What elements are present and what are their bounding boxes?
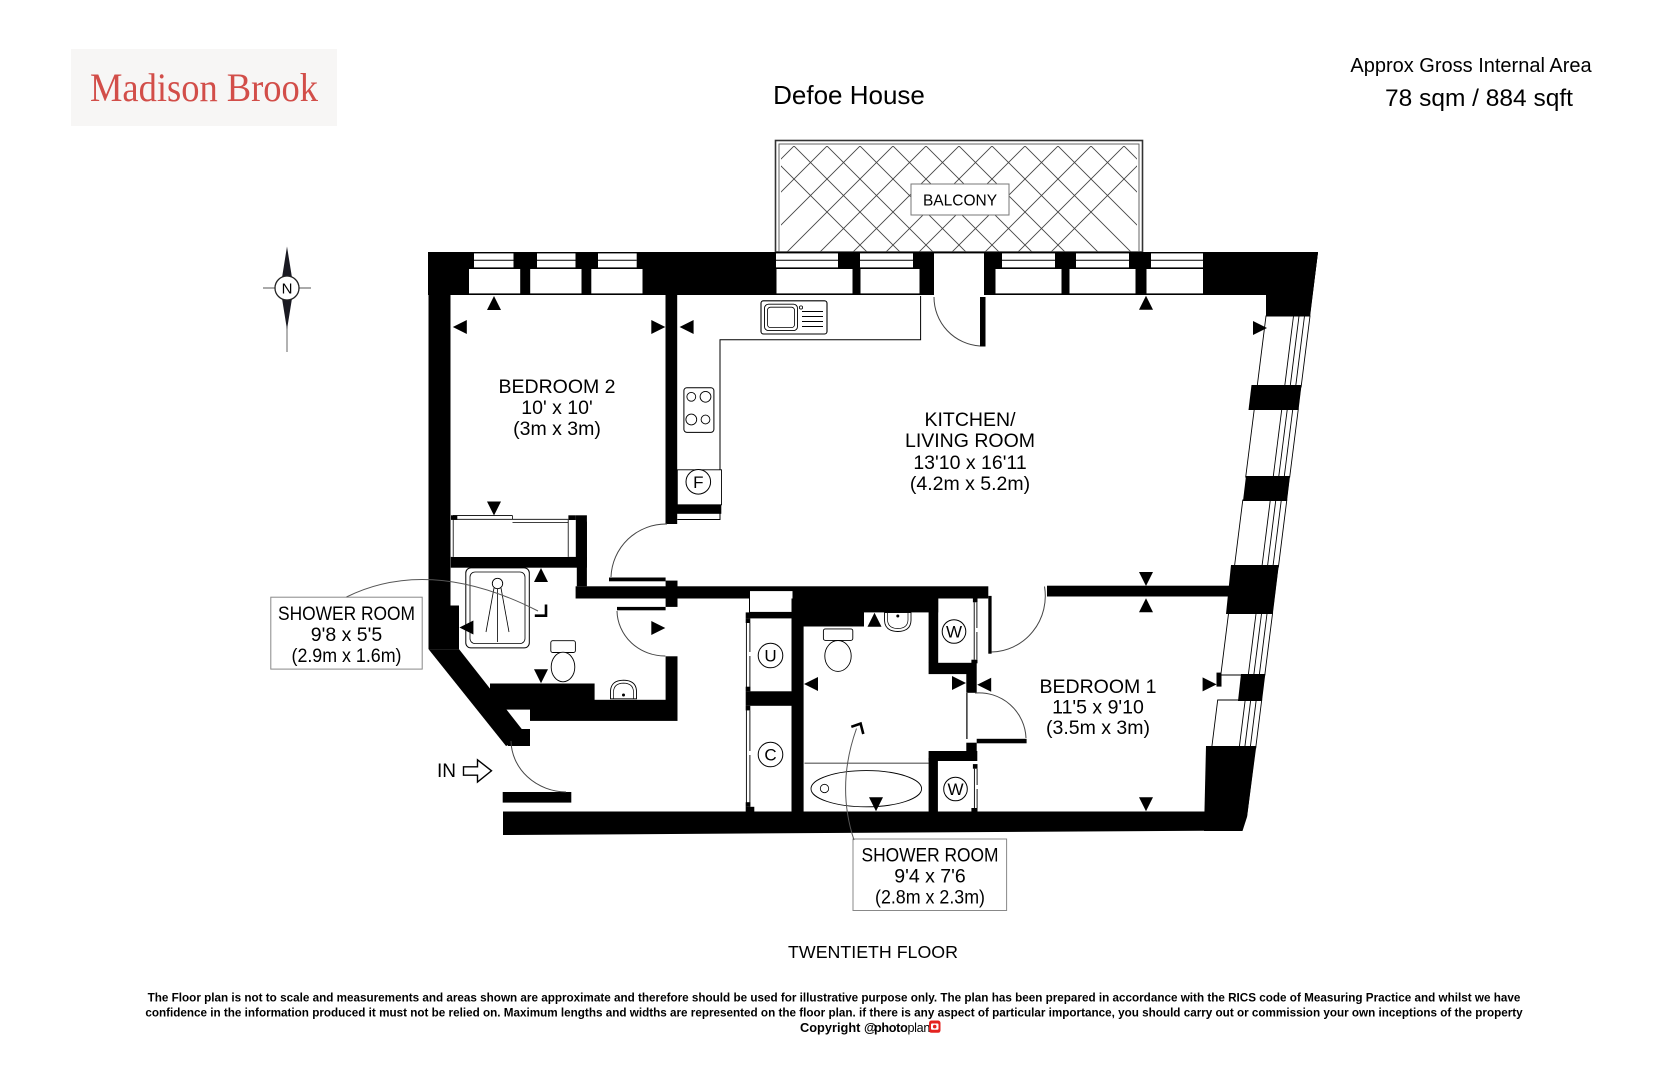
svg-text:U: U — [764, 647, 776, 666]
svg-text:Copyright @: Copyright @ — [800, 1020, 876, 1035]
svg-text:13'10 x 16'11: 13'10 x 16'11 — [913, 452, 1026, 474]
svg-text:LIVING ROOM: LIVING ROOM — [905, 430, 1035, 452]
svg-text:BALCONY: BALCONY — [923, 193, 997, 210]
svg-text:9'4 x 7'6: 9'4 x 7'6 — [894, 866, 965, 888]
svg-text:(3.5m x 3m): (3.5m x 3m) — [1046, 717, 1150, 739]
svg-text:F: F — [693, 473, 703, 492]
svg-text:(3m x 3m): (3m x 3m) — [513, 418, 601, 440]
svg-text:SHOWER ROOM: SHOWER ROOM — [862, 845, 999, 867]
svg-text:(2.8m x 2.3m): (2.8m x 2.3m) — [875, 887, 985, 909]
svg-text:Madison Brook: Madison Brook — [90, 65, 318, 110]
svg-text:C: C — [764, 746, 776, 765]
svg-text:BEDROOM 1: BEDROOM 1 — [1039, 676, 1156, 698]
svg-text:78 sqm / 884 sqft: 78 sqm / 884 sqft — [1385, 85, 1573, 112]
svg-text:11'5 x 9'10: 11'5 x 9'10 — [1052, 697, 1144, 719]
svg-text:(4.2m x 5.2m): (4.2m x 5.2m) — [910, 473, 1030, 495]
svg-text:N: N — [282, 281, 293, 298]
svg-text:BEDROOM 2: BEDROOM 2 — [498, 376, 615, 398]
svg-text:W: W — [946, 623, 962, 642]
svg-text:The Floor plan is not to scale: The Floor plan is not to scale and measu… — [148, 992, 1521, 1005]
svg-text:TWENTIETH FLOOR: TWENTIETH FLOOR — [788, 942, 958, 962]
svg-text:IN: IN — [437, 761, 456, 782]
svg-text:Defoe House: Defoe House — [773, 80, 925, 110]
svg-text:(2.9m x 1.6m): (2.9m x 1.6m) — [292, 645, 402, 667]
svg-text:photoplan: photoplan — [874, 1021, 930, 1035]
svg-text:KITCHEN/: KITCHEN/ — [924, 409, 1016, 431]
svg-text:W: W — [947, 780, 963, 799]
svg-text:10' x 10': 10' x 10' — [521, 397, 592, 419]
svg-text:9'8 x 5'5: 9'8 x 5'5 — [311, 624, 383, 646]
svg-text:Approx Gross Internal Area: Approx Gross Internal Area — [1350, 55, 1592, 77]
svg-text:confidence in the information: confidence in the information produced i… — [145, 1007, 1523, 1020]
svg-text:SHOWER ROOM: SHOWER ROOM — [278, 603, 415, 625]
